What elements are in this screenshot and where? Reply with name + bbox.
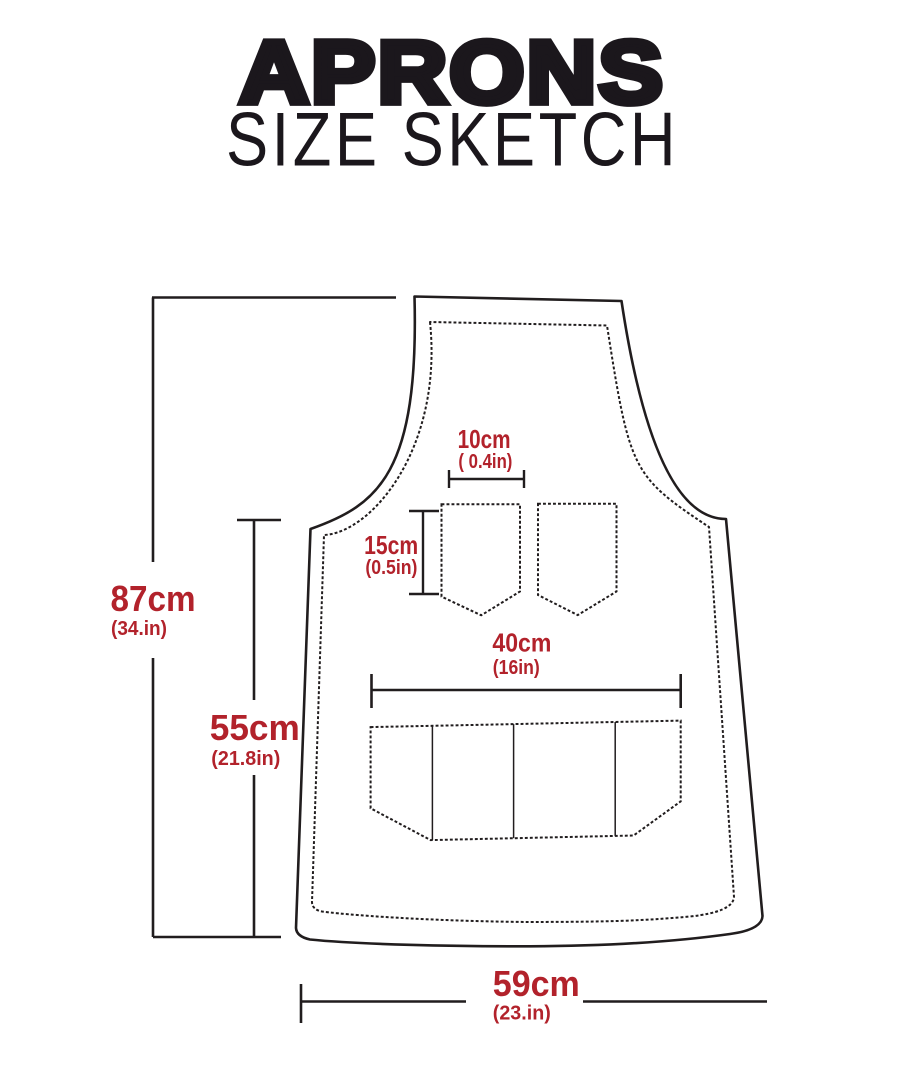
svg-text:( 0.4in): ( 0.4in) bbox=[458, 450, 512, 473]
svg-text:59cm: 59cm bbox=[493, 963, 580, 1004]
svg-text:(0.5in): (0.5in) bbox=[365, 556, 417, 579]
svg-text:(21.8in): (21.8in) bbox=[211, 747, 280, 770]
svg-text:(23.in): (23.in) bbox=[493, 1002, 551, 1025]
svg-text:(34.in): (34.in) bbox=[111, 617, 167, 640]
svg-text:(16in): (16in) bbox=[493, 656, 540, 679]
svg-text:55cm: 55cm bbox=[210, 707, 300, 748]
svg-text:87cm: 87cm bbox=[111, 578, 196, 619]
svg-text:40cm: 40cm bbox=[492, 628, 551, 658]
svg-text:SIZE SKETCH: SIZE SKETCH bbox=[226, 97, 679, 182]
